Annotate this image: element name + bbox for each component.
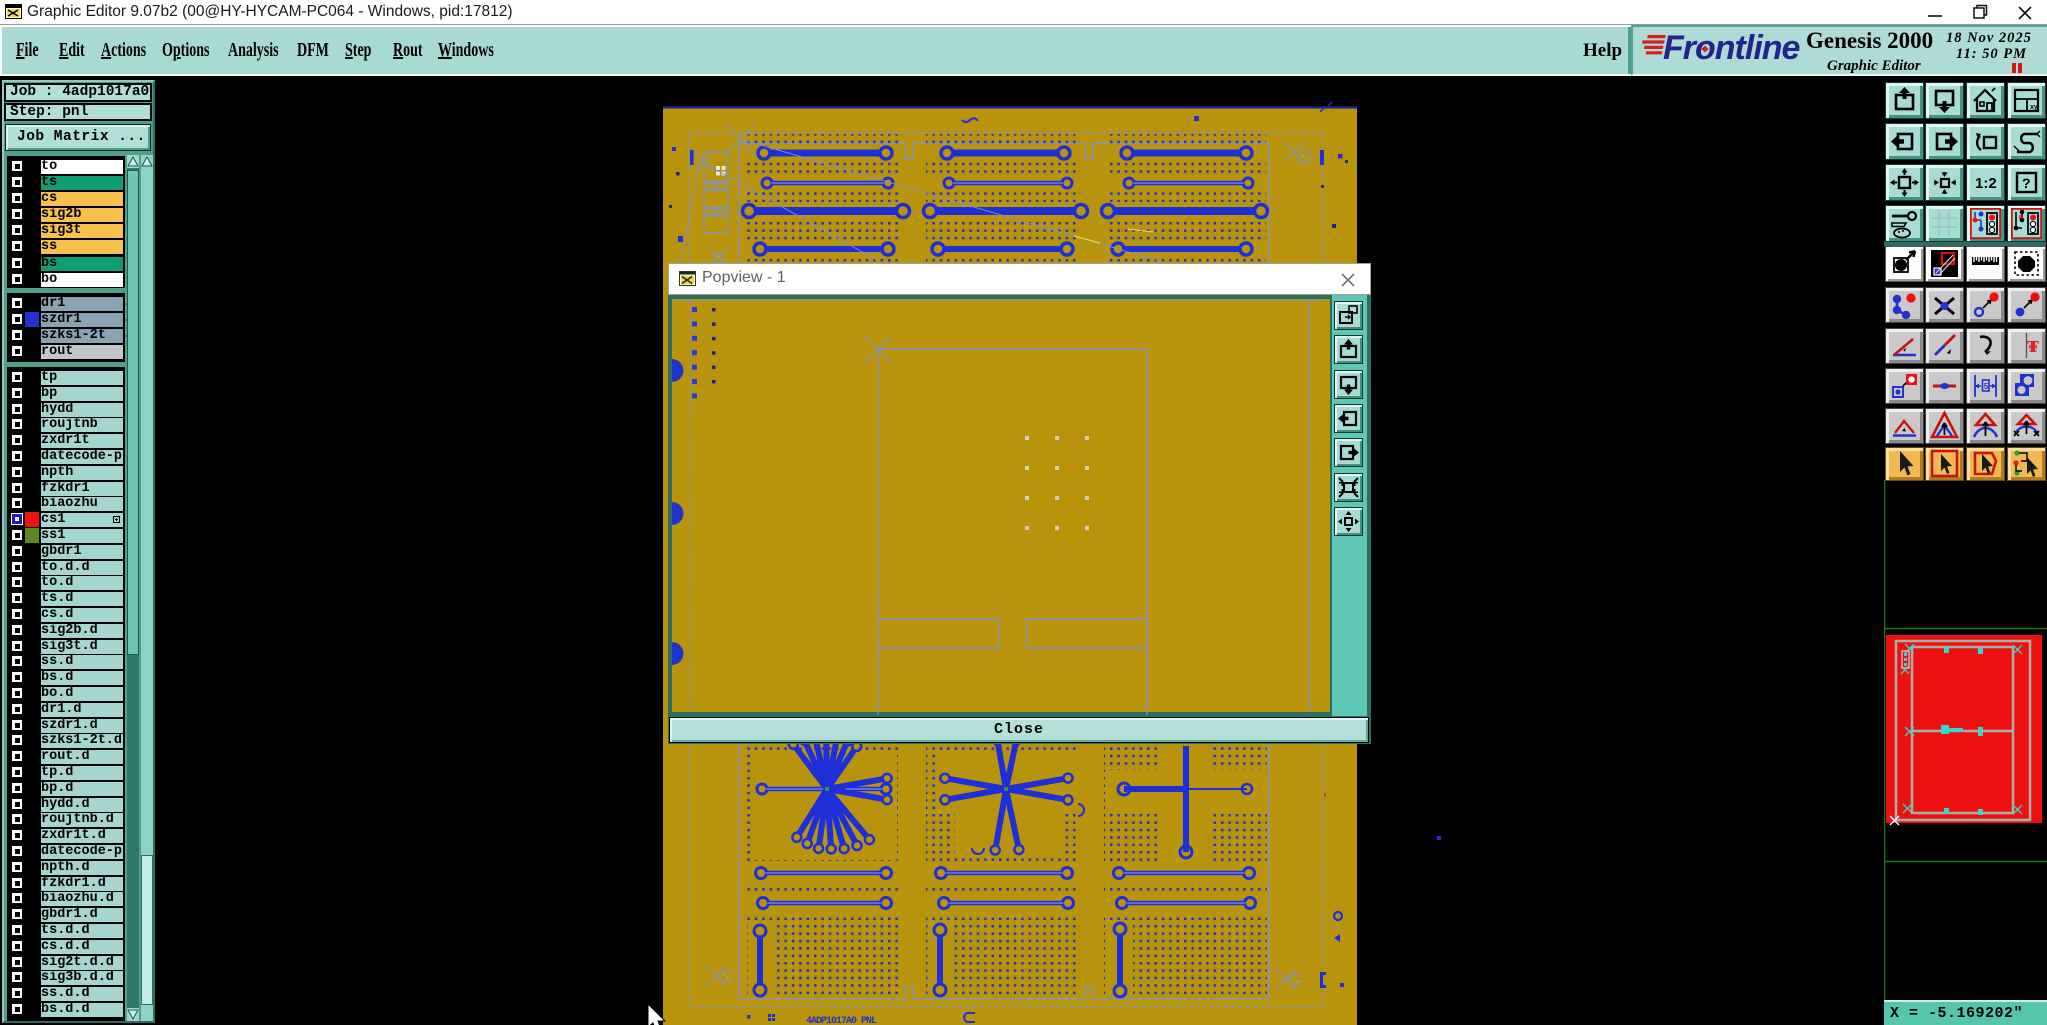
- svg-text:5: 5: [1984, 382, 1989, 391]
- svg-text:?: ?: [2022, 175, 2031, 191]
- svg-text:xy: xy: [2030, 104, 2038, 111]
- svg-text:4ADP1017A0 ​PNL: 4ADP1017A0 ​PNL: [806, 1016, 877, 1025]
- svg-text:F: F: [2026, 337, 2036, 356]
- svg-text:1:2: 1:2: [1975, 175, 1997, 192]
